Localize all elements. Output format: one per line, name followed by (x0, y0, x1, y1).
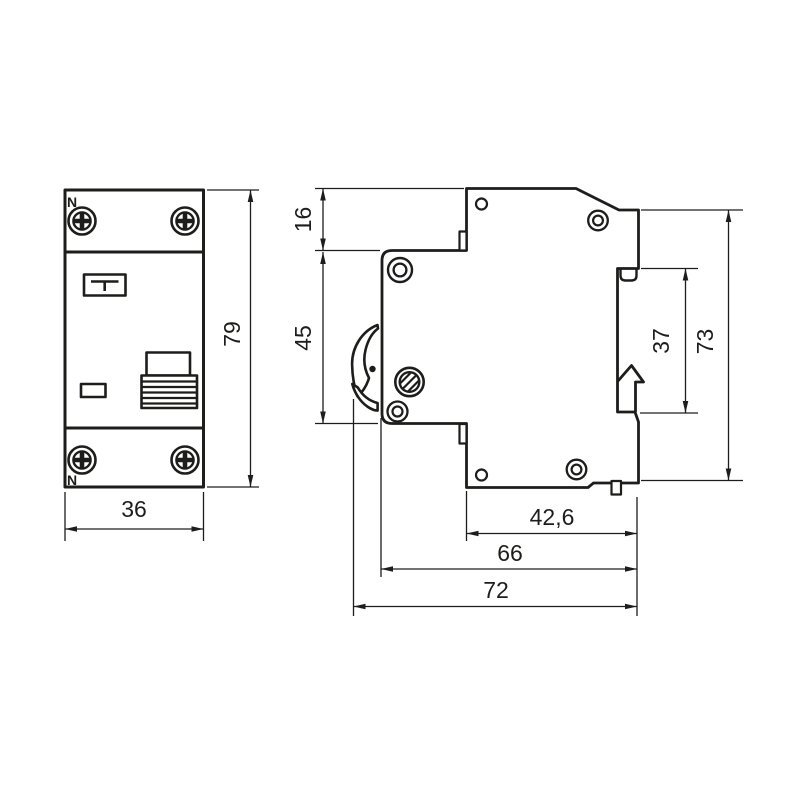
arrowhead-left (65, 526, 77, 532)
din-rail-channel (618, 269, 644, 413)
circuit-breaker-dimension-drawing: N N (0, 0, 800, 800)
side-view (352, 189, 643, 495)
toggle-handle-top (147, 353, 191, 376)
technical-drawing-page: N N (0, 0, 800, 800)
arrowhead-up (320, 252, 326, 264)
lever-pivot-dot (369, 366, 375, 372)
neutral-label-bottom: N (67, 472, 77, 488)
arrowhead-up (683, 269, 689, 281)
neutral-label-top: N (67, 194, 77, 210)
dim-din-channel-37: 37 (640, 269, 698, 414)
dim-label-42-6: 42,6 (530, 504, 575, 530)
rail-upper-notch (621, 269, 637, 281)
terminal-screw-bottom-left (69, 447, 96, 474)
dim-label-72: 72 (483, 577, 509, 603)
arrowhead-down (726, 469, 732, 481)
test-button (84, 275, 126, 296)
dim-width-36: 36 (65, 492, 204, 541)
indicator-window (81, 384, 106, 397)
dim-label-79: 79 (219, 321, 245, 347)
arrowhead-right (625, 566, 637, 572)
arrowhead-up (320, 189, 326, 201)
arrowhead-up (248, 190, 254, 202)
dim-height-79: 79 (207, 190, 259, 487)
arrowhead-left (467, 531, 479, 537)
arrowhead-right (192, 526, 204, 532)
arrowhead-down (320, 412, 326, 424)
dim-label-37: 37 (648, 328, 674, 354)
arrowhead-right (625, 604, 637, 610)
arrowhead-left (381, 566, 393, 572)
arrowhead-down (320, 239, 326, 251)
front-view: N N (65, 190, 204, 488)
rail-clip-hook (618, 366, 644, 413)
arrowhead-left (354, 604, 366, 610)
terminal-screw-top-left (69, 208, 96, 235)
side-body-outline (382, 189, 639, 488)
dim-label-66: 66 (497, 540, 523, 566)
dim-label-45: 45 (290, 325, 316, 351)
arrowhead-up (726, 210, 732, 222)
dim-label-36: 36 (121, 496, 147, 522)
toggle-switch (142, 353, 198, 409)
arrowhead-down (683, 401, 689, 413)
dim-label-16: 16 (290, 207, 316, 233)
lower-step-tab (460, 424, 467, 444)
din-clip-tab (612, 481, 622, 495)
dim-label-73: 73 (692, 329, 718, 355)
terminal-screw-bottom-right (172, 447, 199, 474)
toggle-lever-side (352, 325, 378, 411)
arrowhead-right (625, 531, 637, 537)
upper-step-tab (460, 232, 467, 251)
dim-top-section-16: 16 (290, 189, 464, 251)
terminal-screw-top-right (172, 208, 199, 235)
dim-rear-depth-42-6: 42,6 (467, 491, 638, 541)
arrowhead-down (248, 475, 254, 487)
